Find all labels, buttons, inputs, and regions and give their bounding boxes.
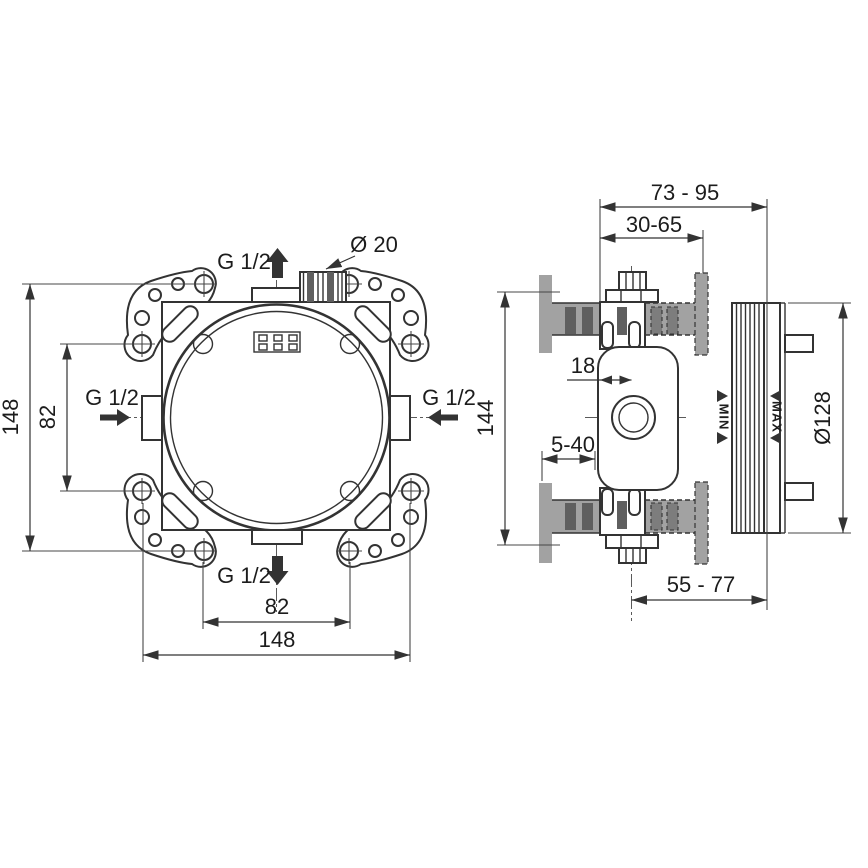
guide-slot: [629, 489, 640, 515]
slot-dark-top: [617, 307, 627, 335]
wall-plate-front: [539, 483, 552, 563]
port-left: [142, 396, 162, 440]
technical-drawing-page: G 1/2 G 1/2 G 1/2 G 1/2 Ø 20 148 82 82 1…: [0, 0, 868, 868]
wall-plate-max-dashed: [695, 273, 708, 355]
connection-top-label: G 1/2: [217, 249, 271, 274]
wall-plate-front: [539, 275, 552, 353]
knurled-plug-top: [619, 272, 646, 290]
svg-text:MAX: MAX: [770, 401, 785, 433]
svg-text:MIN: MIN: [717, 404, 732, 431]
connection-right-label: G 1/2: [422, 385, 476, 410]
rim-tab: [785, 335, 813, 352]
port-bottom: [252, 530, 302, 544]
dim-center-offset-label: 18: [571, 353, 595, 378]
dim-depth-overall-label: 73 - 95: [651, 180, 720, 205]
side-view: MIN MAX 73 - 95 30-65 18 5-40 144: [473, 180, 851, 621]
slot-dark-bottom: [617, 501, 627, 529]
dim-width-fixing-label: 82: [265, 594, 289, 619]
wall-plate-max-dashed: [695, 482, 708, 564]
rim-tab: [785, 483, 813, 500]
dim-plaster-range-label: 5-40: [551, 432, 595, 457]
hex-flange-top: [606, 290, 658, 302]
port-right: [390, 396, 410, 440]
guide-slot: [629, 322, 640, 348]
valve-housing: [598, 347, 678, 490]
installation-drawing: G 1/2 G 1/2 G 1/2 G 1/2 Ø 20 148 82 82 1…: [0, 0, 868, 868]
dim-faceplate-diameter-label: Ø128: [810, 391, 835, 445]
front-view: G 1/2 G 1/2 G 1/2 G 1/2 Ø 20 148 82 82 1…: [0, 232, 476, 662]
hex-flange-bottom: [606, 535, 658, 548]
flow-arrow-left: [428, 409, 458, 426]
conduit-connector: [300, 272, 346, 302]
dim-cover-depth-label: 55 - 77: [667, 572, 736, 597]
dim-box-depth-label: 30-65: [626, 212, 682, 237]
ribbed-cover: [732, 303, 764, 533]
min-marker: MIN: [717, 390, 732, 444]
dim-height-label: 144: [473, 400, 498, 437]
dim-height-overall-label: 148: [0, 399, 23, 436]
port-top: [252, 288, 302, 302]
connection-bottom-label: G 1/2: [217, 563, 271, 588]
conduit-leader: [326, 256, 355, 269]
connection-left-label: G 1/2: [85, 385, 139, 410]
flow-arrow-right: [100, 409, 130, 426]
guide-slot: [602, 322, 613, 348]
knurled-plug-bottom: [619, 548, 646, 563]
conduit-diameter-label: Ø 20: [350, 232, 398, 257]
dim-height-fixing-label: 82: [35, 405, 60, 429]
guide-slot: [602, 489, 613, 515]
dim-width-overall-label: 148: [259, 627, 296, 652]
